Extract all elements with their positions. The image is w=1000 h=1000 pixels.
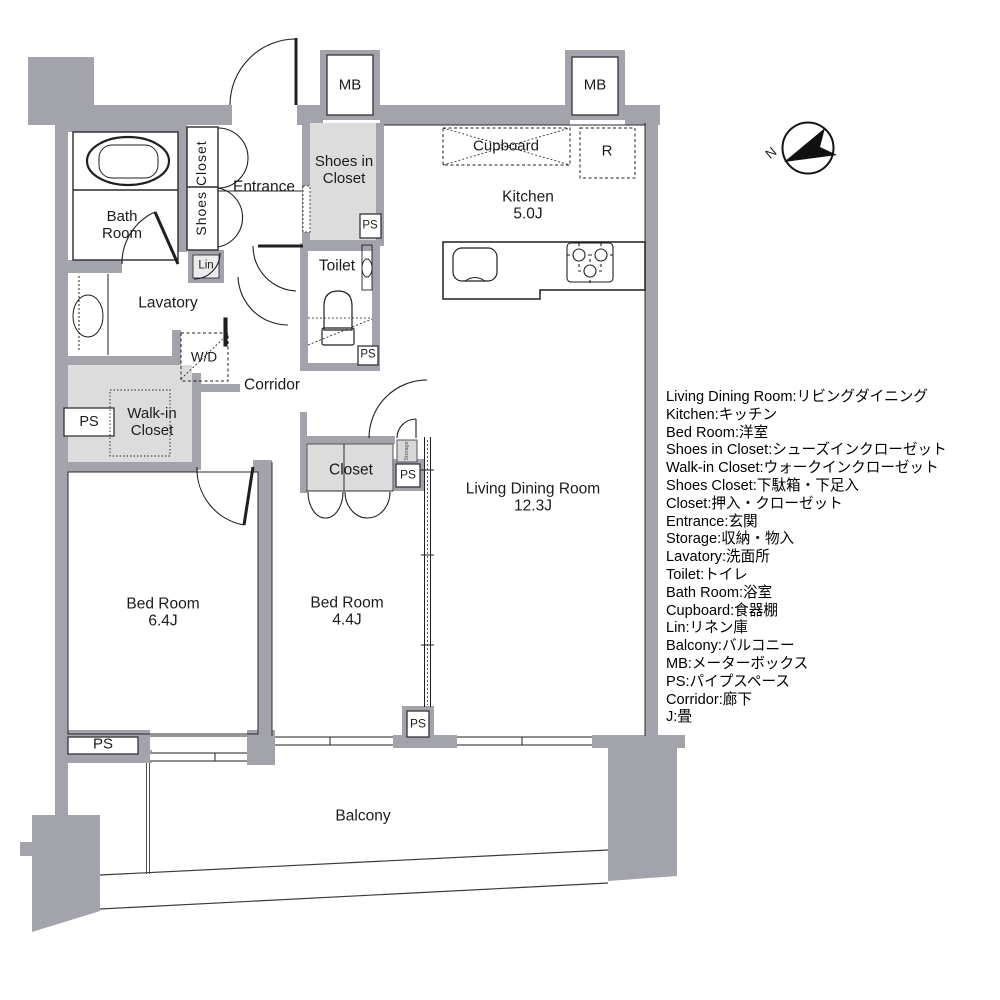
entrance-label: Entrance [233, 178, 295, 195]
shoes-closet-label: Shoes Closet [194, 140, 210, 235]
mb1-label: MB [339, 78, 362, 95]
ldr-door [369, 380, 427, 438]
legend-item: Walk-in Closet:ウォークインクローゼット [666, 460, 947, 478]
legend-item: Entrance:玄関 [666, 514, 947, 532]
balcony-pillar-right [608, 748, 677, 881]
sic-sliding-door [303, 186, 310, 232]
legend-item: Corridor:廊下 [666, 692, 947, 710]
balcony-rail [100, 763, 608, 909]
kitchen-area: 5.0J [502, 206, 554, 223]
legend-item: PS:パイプスペース [666, 674, 947, 692]
bed2-name: Bed Room [310, 595, 383, 612]
ldr-area: 12.3J [466, 498, 600, 515]
ldr-name: Living Dining Room [466, 481, 600, 498]
kitchen-label: Kitchen 5.0J [502, 189, 554, 224]
corridor-label: Corridor [244, 376, 300, 393]
legend-item: Kitchen:キッチン [666, 407, 947, 425]
bed-room-1-label: Bed Room 6.4J [126, 596, 199, 631]
bed1-door [197, 467, 253, 525]
balcony-pillar-left [32, 815, 100, 932]
wall-wd-left [172, 330, 181, 365]
wall-bath-strip [178, 125, 187, 252]
bed2-area: 4.4J [310, 612, 383, 629]
legend-item: Storage:収納・物入 [666, 531, 947, 549]
kitchen-name: Kitchen [502, 189, 554, 206]
closet-doors [308, 492, 390, 518]
balcony-divider [147, 763, 150, 874]
kitchen-counter-icon [443, 242, 645, 299]
ps-label-toilet: PS [360, 349, 375, 362]
wall-between-bedrooms [258, 462, 272, 734]
washer-dryer-label: W/D [191, 349, 217, 364]
lin-label: Lin [198, 260, 213, 273]
compass-icon [783, 123, 838, 174]
wall-top-band-3 [380, 105, 570, 125]
wall-toilet-top [300, 243, 380, 251]
legend-item: Bath Room:浴室 [666, 585, 947, 603]
cupboard-label: Cupboard [473, 139, 539, 156]
legend-item: Balcony:バルコニー [666, 638, 947, 656]
walk-in-closet-label: Walk-in Closet [107, 406, 197, 440]
legend: Living Dining Room:リビングダイニング Kitchen:キッチ… [666, 389, 947, 727]
wall-bottom-right-band [592, 735, 685, 748]
ps-label-bottom: PS [93, 737, 113, 754]
wall-lavatory-bottom [55, 356, 172, 365]
legend-item: Bed Room:洋室 [666, 425, 947, 443]
legend-item: Lin:リネン庫 [666, 620, 947, 638]
wall-toilet-left [300, 243, 308, 371]
refrigerator-label: R [602, 144, 613, 161]
legend-item: J:畳 [666, 709, 947, 727]
window-bed1 [150, 752, 247, 762]
wall-closet-left [300, 412, 307, 493]
corridor-kitchen-door [238, 277, 288, 325]
window-ldr [457, 736, 592, 746]
toilet-label: Toilet [319, 257, 355, 274]
lavatory-label: Lavatory [138, 294, 197, 311]
legend-item: Living Dining Room:リビングダイニング [666, 389, 947, 407]
window-bed2 [275, 736, 393, 746]
balcony-rail-inner [100, 883, 608, 909]
living-dining-label: Living Dining Room 12.3J [466, 481, 600, 516]
legend-item: MB:メーターボックス [666, 656, 947, 674]
legend-item: Closet:押入・クローゼット [666, 496, 947, 514]
legend-item: Shoes Closet:下駄箱・下足入 [666, 478, 947, 496]
wall-bottom-mid-block [247, 730, 275, 765]
wall-right-outer [645, 117, 658, 739]
floor-plan: Bath Room Shoes Closet Entrance Shoes in… [0, 0, 1000, 1000]
bed1-area: 6.4J [126, 613, 199, 630]
ps-label-sic: PS [362, 220, 377, 233]
ps-label-partition: PS [410, 717, 426, 730]
legend-item: Toilet:トイレ [666, 567, 947, 585]
storage-door [397, 419, 416, 438]
entrance-door [230, 38, 296, 105]
wall-bath-bottom [68, 260, 122, 273]
bed-room-2-label: Bed Room 4.4J [310, 595, 383, 630]
bed1-name: Bed Room [126, 596, 199, 613]
mb2-label: MB [584, 78, 607, 95]
legend-item: Shoes in Closet:シューズインクローゼット [666, 442, 947, 460]
wall-top-left-block [28, 57, 94, 125]
storage-label: Storage [404, 441, 410, 460]
legend-item: Lavatory:洗面所 [666, 549, 947, 567]
bath-room-label: Bath Room [92, 209, 152, 243]
balcony-rail-outer [100, 850, 608, 875]
shoes-in-closet-label: Shoes in Closet [305, 154, 383, 188]
wash-basin-icon [73, 274, 108, 355]
ps-label-closet: PS [400, 468, 416, 481]
wall-top-band-2 [297, 105, 323, 125]
balcony-label: Balcony [335, 807, 390, 824]
legend-item: Cupboard:食器棚 [666, 603, 947, 621]
closet-label: Closet [329, 461, 373, 478]
balcony-pillar-tab [20, 842, 32, 856]
wall-top-band-1 [94, 105, 232, 125]
wall-closet-top [302, 436, 395, 444]
wall-bath-top [68, 125, 178, 132]
hall-corridor-door [253, 246, 303, 291]
ps-label-wic: PS [79, 414, 98, 430]
wall-bottom-piece-b [434, 735, 457, 748]
